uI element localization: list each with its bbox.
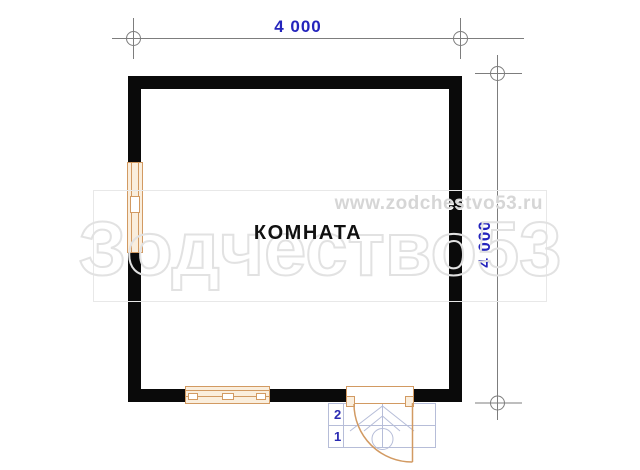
- room-label: КОМНАТА: [238, 222, 378, 245]
- step-number-1: 1: [334, 429, 341, 444]
- left-window: [128, 163, 143, 253]
- step-number-2: 2: [334, 407, 341, 422]
- bottom-window-mark-left: [189, 394, 198, 400]
- dimension-top-label: 4 000: [258, 17, 338, 37]
- bottom-window-mark-center: [223, 394, 234, 400]
- floor-plan-canvas: 4 000 4 000 2 1 www.zodchestvo53.ru Зодч…: [0, 0, 640, 470]
- bottom-window: [186, 387, 270, 404]
- door-swing-arc: [354, 404, 413, 462]
- porch-steps: [329, 404, 436, 450]
- left-window-casement-mark: [131, 197, 140, 213]
- bottom-window-mark-right: [257, 394, 266, 400]
- dimension-right-label: 4 000: [475, 204, 495, 284]
- entrance-door: [347, 387, 414, 463]
